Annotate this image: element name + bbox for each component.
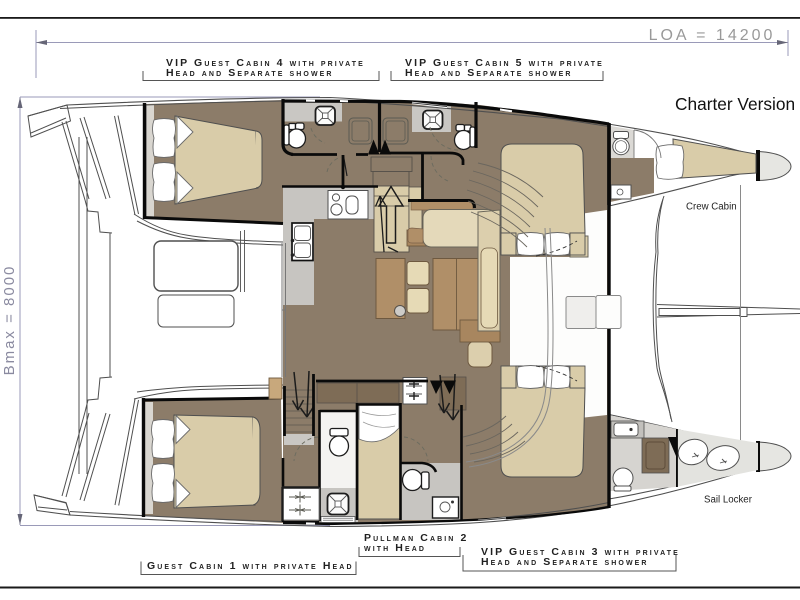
svg-text:Charter Version: Charter Version: [675, 94, 795, 114]
svg-text:Sail Locker: Sail Locker: [704, 495, 753, 506]
svg-text:LOA = 14200: LOA = 14200: [649, 27, 776, 44]
svg-text:Bmax = 8000: Bmax = 8000: [1, 265, 18, 376]
svg-text:Crew Cabin: Crew Cabin: [686, 202, 737, 213]
